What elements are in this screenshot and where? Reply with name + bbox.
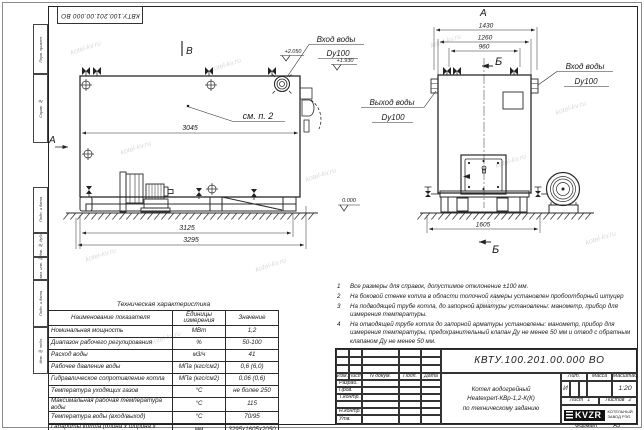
view-a-label: А: [48, 135, 56, 146]
param-name: Температура воды (вход/выход): [49, 412, 173, 424]
tech-characteristics: Техническая характеристика Наименование …: [48, 301, 279, 430]
titleblock-cell: [362, 401, 399, 408]
titleblock-cell: [349, 349, 362, 357]
titleblock-cell: [349, 357, 362, 365]
inlet-label: Вход воды: [566, 62, 605, 71]
titleblock-cell: [399, 401, 421, 408]
param-name: Рабочее давление воды: [49, 362, 173, 374]
dim-1605: 1605: [476, 222, 491, 229]
kvzr-logo-icon: [566, 411, 573, 420]
drawing-sheet: kotel-kv.ru kotel-kv.ru kotel-kv.ru kote…: [0, 0, 644, 430]
titleblock-cell: [570, 381, 579, 397]
front-outlet-label: Выход воды Dy100: [361, 91, 436, 123]
titleblock-cell: [362, 387, 399, 394]
titleblock-cell: [362, 349, 399, 357]
param-units: м3/ч: [173, 350, 226, 362]
titleblock-cell: [362, 415, 399, 425]
row-utv: Утв.: [336, 415, 362, 425]
param-value: 0,06 (0,6): [226, 374, 279, 386]
inlet-flange-icon: [273, 75, 292, 94]
titleblock-cell: [336, 349, 349, 357]
tech-header-name: Наименование показателя: [49, 311, 173, 326]
note-text: На отводящей трубе котла до запорной арм…: [350, 321, 632, 346]
table-row: Температура воды (вход/выход)°С70/95: [49, 412, 279, 424]
title-block: Изм. Лист N докум. Подп. Дата Разраб. Пр…: [335, 348, 637, 424]
front-inlet-label: Вход воды Dy100: [538, 62, 613, 87]
row-blank: [336, 401, 362, 408]
note-number: 2: [337, 293, 350, 301]
sight-panel: [503, 92, 523, 109]
view-b-label: В: [186, 46, 193, 57]
lifting-lug-icons: [80, 79, 218, 195]
kvzr-logo-text: KVZR: [575, 411, 602, 420]
inlet-label: Вход воды: [317, 35, 356, 44]
col-list: Лист: [349, 373, 362, 380]
format-label: Формат А3: [575, 423, 620, 429]
table-row: Гидравлическое сопротивление котлаМПа (к…: [49, 374, 279, 386]
param-value: 50-100: [226, 338, 279, 350]
callout-text: см. п. 2: [243, 111, 274, 121]
table-row: Диапазон рабочего регулирования%50-100: [49, 338, 279, 350]
dim-1260: 1260: [478, 35, 493, 42]
pipe-flanges: [431, 79, 538, 93]
row-nkontr: Н.контр.: [336, 408, 362, 415]
titleblock-cell: [399, 394, 421, 401]
note-item: 1Все размеры для справок, допустимое отк…: [337, 283, 632, 291]
notes-list: 1Все размеры для справок, допустимое отк…: [337, 283, 632, 348]
note-text: Все размеры для справок, допустимое откл…: [350, 283, 632, 291]
titleblock-cell: [362, 408, 399, 415]
param-units: МПа (кгс/см2): [173, 362, 226, 374]
skid-frame: [80, 197, 296, 211]
titleblock-cell: [362, 357, 399, 365]
sheets-label: Листов: [606, 398, 625, 403]
titleblock-cell: [421, 408, 441, 415]
param-name: Диапазон рабочего регулирования: [49, 338, 173, 350]
titleblock-cell: [421, 394, 441, 401]
callout-see-item-2: см. п. 2: [187, 105, 285, 122]
format-value: А3: [613, 423, 620, 429]
note-item: 3На подводящей трубе котла, до запорной …: [337, 303, 632, 320]
param-name: Температура уходящих газов: [49, 386, 173, 398]
param-value: 1,2: [226, 326, 279, 338]
col-podp: Подп.: [399, 373, 421, 380]
titleblock-cell: [421, 401, 441, 408]
titleblock-cell: [336, 357, 349, 365]
section-b-label-bottom: Б: [492, 244, 499, 256]
zero-elevation-marker: 0.000: [338, 198, 360, 211]
note-number: 1: [337, 283, 350, 291]
titleblock-cell: [362, 394, 399, 401]
company-name: КОТЕЛЬНЫЙ ЗАВОД РЭП: [608, 410, 633, 420]
tech-table: Наименование показателя Единицы измерени…: [48, 310, 279, 430]
titleblock-cell: [421, 357, 441, 365]
doc-name-line: Котел водогрейный: [472, 385, 531, 394]
table-row: Максимальная рабочая температура воды°С1…: [49, 398, 279, 412]
row-prov: Пров.: [336, 387, 362, 394]
tech-header-units: Единицы измерения: [173, 311, 226, 326]
dim-960: 960: [479, 44, 490, 51]
table-row: Габариты котла (длина х ширина х высота)…: [49, 424, 279, 430]
company-line: ЗАВОД РЭП: [608, 415, 633, 420]
titleblock-cell: [399, 349, 421, 357]
company-cell: KVZR КОТЕЛЬНЫЙ ЗАВОД РЭП: [561, 405, 638, 425]
col-data: Дата: [421, 373, 441, 380]
param-value: 41: [226, 350, 279, 362]
doc-name-line: по техническому заданию: [463, 404, 539, 413]
elevation-inlet: +2.050: [280, 49, 304, 61]
titleblock-cell: [421, 380, 441, 387]
drain-valve-icons: [86, 186, 257, 200]
titleblock-cell: [399, 387, 421, 394]
elev-inlet: +2.050: [285, 49, 303, 55]
kvzr-logo: KVZR: [564, 410, 605, 421]
note-text: На боковой стенке котла в области топочн…: [350, 293, 632, 301]
param-units: %: [173, 338, 226, 350]
dim-3125: 3125: [179, 225, 195, 232]
sheet-value: 1: [587, 398, 590, 403]
sheets-value: 2: [629, 398, 632, 403]
front-dimension-bottom: 1605: [427, 215, 540, 233]
fan-blower: [547, 173, 580, 214]
note-text: На подводящей трубе котла, до запорной а…: [350, 303, 632, 320]
front-dimensions-top: 1430 1260 960: [434, 23, 537, 76]
dim-3045: 3045: [182, 125, 198, 132]
outlet-label: Выход воды: [370, 98, 415, 107]
titleblock-cell: [421, 365, 441, 373]
inlet-dn: Dy100: [326, 49, 350, 58]
titleblock-cell: [399, 357, 421, 365]
table-row: Рабочее давление водыМПа (кгс/см2)0,6 (6…: [49, 362, 279, 374]
table-row: Температура уходящих газов°Сне более 250: [49, 386, 279, 398]
dim-1430: 1430: [479, 23, 494, 30]
doc-number: КВТУ.100.201.00.000 ВО: [441, 349, 638, 373]
section-b-label-top: Б: [495, 56, 502, 68]
mass-header: Масса: [587, 373, 612, 381]
row-razrab: Разраб.: [336, 380, 362, 387]
titleblock-cell: [349, 365, 362, 373]
note-number: 4: [337, 321, 350, 346]
param-units: МПа (кгс/см2): [173, 374, 226, 386]
titleblock-cell: [399, 408, 421, 415]
titleblock-cell: [336, 365, 349, 373]
param-value: 3295х1605х2050: [226, 424, 279, 430]
dim-3295: 3295: [183, 237, 199, 244]
titleblock-cell: [421, 415, 441, 425]
param-units: °С: [173, 386, 226, 398]
elev-inlet-2: +1.930: [337, 58, 355, 64]
titleblock-cell: [399, 365, 421, 373]
sheet-label: Лист: [570, 398, 583, 403]
side-door-detail: [300, 88, 321, 132]
param-name: Номинальная мощность: [49, 326, 173, 338]
col-ndocum: N докум.: [362, 373, 399, 380]
elevation-inlet-2: +1.930: [331, 58, 357, 70]
tech-header-value: Значение: [226, 311, 279, 326]
front-view-title: А: [479, 8, 487, 19]
param-units: мм: [173, 424, 226, 430]
titleblock-cell: [399, 415, 421, 425]
titleblock-cell: [362, 380, 399, 387]
lit-value: И: [561, 381, 570, 397]
table-row: Расход водым3/ч41: [49, 350, 279, 362]
table-row: Номинальная мощностьМВт1,2: [49, 326, 279, 338]
front-view: А 1430 1260 960 Б: [361, 8, 613, 256]
row-tkontr: Т.контр.: [336, 394, 362, 401]
sheets-cell: Листов 2: [599, 397, 638, 405]
note-item: 4На отводящей трубе котла до запорной ар…: [337, 321, 632, 346]
side-view: 3045 3125 3295 0.000 В А: [48, 35, 364, 249]
param-value: 115: [226, 398, 279, 412]
doc-name-line: Heatexpert-КВр-1,2-К(К): [467, 394, 535, 403]
outlet-dn: Dy100: [381, 113, 405, 122]
param-name: Расход воды: [49, 350, 173, 362]
side-inlet-label: Вход воды Dy100: [287, 35, 364, 77]
front-top-valve-icons: [443, 67, 518, 75]
side-dimensions: 3045 3125 3295: [76, 125, 306, 249]
inlet-dn: Dy100: [574, 77, 598, 86]
note-item: 2На боковой стенке котла в области топоч…: [337, 293, 632, 301]
note-number: 3: [337, 303, 350, 320]
top-valve-icons: [82, 67, 276, 76]
tech-table-title: Техническая характеристика: [48, 301, 279, 308]
param-name: Габариты котла (длина х ширина х высота): [49, 424, 173, 430]
scale-value: 1:20: [612, 381, 638, 397]
titleblock-cell: [421, 387, 441, 394]
param-value: не более 250: [226, 386, 279, 398]
param-name: Максимальная рабочая температура воды: [49, 398, 173, 412]
param-units: МВт: [173, 326, 226, 338]
param-units: °С: [173, 412, 226, 424]
param-value: 70/95: [226, 412, 279, 424]
titleblock-cell: [579, 381, 587, 397]
scale-header: Масштаб: [612, 373, 638, 381]
titleblock-cell: [399, 380, 421, 387]
param-units: °С: [173, 398, 226, 412]
col-izm: Изм.: [336, 373, 349, 380]
burner-fan-motor: [120, 172, 173, 212]
format-word: Формат: [575, 423, 597, 429]
titleblock-cell: [421, 349, 441, 357]
lit-header: Лит.: [561, 373, 587, 381]
doc-name: Котел водогрейный Heatexpert-КВр-1,2-К(К…: [441, 373, 561, 425]
mass-value: [587, 381, 612, 397]
furnace-door: [461, 155, 506, 194]
sheet-cell: Лист 1: [561, 397, 599, 405]
param-value: 0,6 (6,0): [226, 362, 279, 374]
elev-zero: 0.000: [342, 198, 357, 204]
titleblock-cell: [362, 365, 399, 373]
param-name: Гидравлическое сопротивление котла: [49, 374, 173, 386]
